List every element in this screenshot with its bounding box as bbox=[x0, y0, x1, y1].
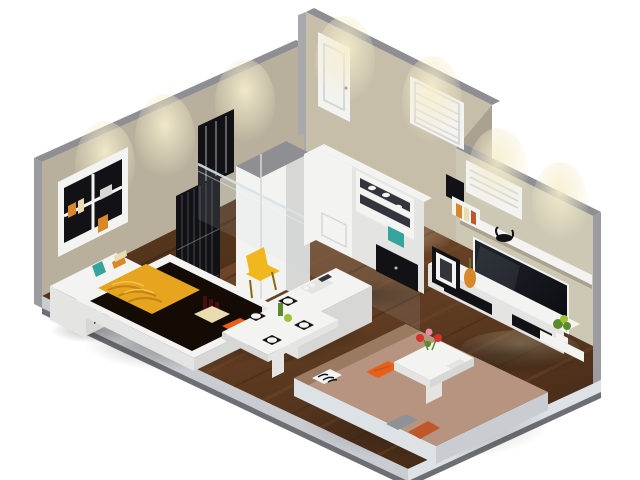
box-book-cream bbox=[464, 207, 469, 222]
shelf-dish bbox=[394, 205, 402, 209]
island-bowl bbox=[303, 286, 309, 290]
shelf-dish bbox=[382, 193, 390, 197]
flower-red bbox=[434, 334, 442, 342]
flower-leaf bbox=[425, 341, 431, 347]
downlight-glow bbox=[135, 94, 195, 182]
plate bbox=[267, 337, 277, 343]
flower-vase bbox=[424, 350, 436, 364]
downlight-glow bbox=[468, 128, 528, 216]
downlight-glow bbox=[315, 16, 375, 108]
downlight-glow bbox=[532, 162, 588, 246]
plant-leaves bbox=[563, 322, 571, 330]
kitchen-unit-side bbox=[304, 148, 316, 246]
bedroom-wall-left-cap bbox=[34, 158, 42, 308]
plate bbox=[283, 298, 293, 304]
lime-cup bbox=[284, 314, 292, 322]
apartment-render bbox=[0, 0, 640, 480]
flower-red bbox=[416, 334, 424, 342]
entry-wall-left-cap bbox=[298, 12, 306, 136]
plate bbox=[251, 313, 261, 319]
downlight-glow bbox=[402, 56, 462, 148]
plate bbox=[299, 322, 309, 328]
plant-leaves bbox=[560, 315, 568, 323]
flower-pink bbox=[426, 329, 433, 336]
green-bottle bbox=[278, 303, 283, 316]
tv-wall-outer-face bbox=[593, 212, 601, 384]
shelf-dish bbox=[368, 186, 376, 190]
base-handle bbox=[395, 267, 398, 270]
isometric-floorplan-svg bbox=[0, 0, 640, 480]
island-bowl bbox=[309, 283, 315, 287]
orange-vase bbox=[464, 268, 476, 288]
